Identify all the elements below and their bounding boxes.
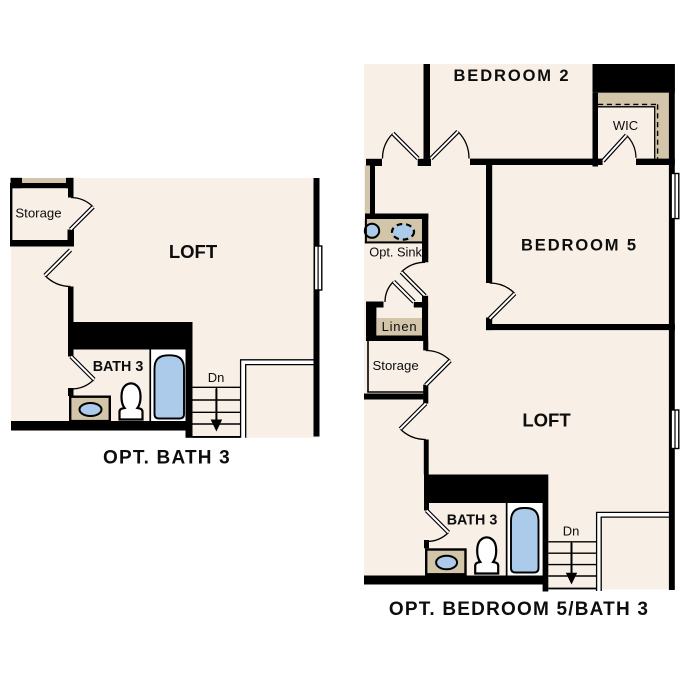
svg-text:LOFT: LOFT <box>522 410 571 431</box>
svg-text:Storage: Storage <box>372 358 418 373</box>
svg-text:OPT. BATH 3: OPT. BATH 3 <box>103 447 231 468</box>
svg-text:Linen: Linen <box>382 319 418 334</box>
svg-text:BATH 3: BATH 3 <box>447 513 498 529</box>
svg-text:Dn: Dn <box>563 524 580 539</box>
svg-text:WIC: WIC <box>613 118 638 133</box>
svg-text:Dn: Dn <box>208 370 225 385</box>
svg-text:BATH 3: BATH 3 <box>93 359 144 375</box>
svg-text:LOFT: LOFT <box>169 241 218 262</box>
svg-text:OPT. BEDROOM 5/BATH 3: OPT. BEDROOM 5/BATH 3 <box>389 599 649 620</box>
svg-text:Opt. Sink: Opt. Sink <box>369 244 422 259</box>
svg-text:Storage: Storage <box>15 206 61 221</box>
svg-text:BEDROOM 5: BEDROOM 5 <box>521 236 638 254</box>
svg-text:BEDROOM 2: BEDROOM 2 <box>453 67 570 85</box>
